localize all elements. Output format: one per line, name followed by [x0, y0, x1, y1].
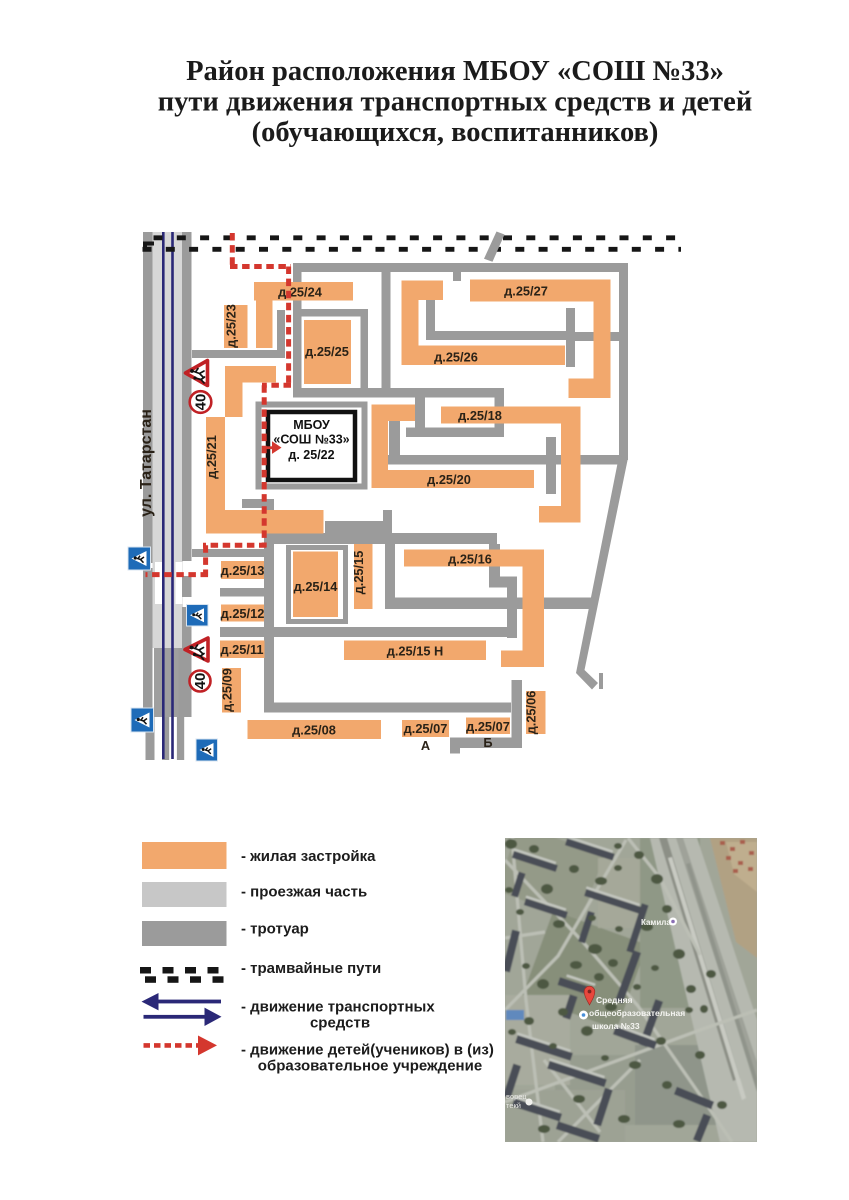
- svg-text:средств: средств: [310, 1015, 370, 1032]
- svg-text:образовательное учреждение: образовательное учреждение: [258, 1058, 482, 1075]
- svg-text:школа №33: школа №33: [592, 1021, 640, 1031]
- svg-text:д.25/23: д.25/23: [224, 304, 239, 348]
- svg-text:- трамвайные пути: - трамвайные пути: [241, 960, 381, 977]
- svg-text:40: 40: [192, 673, 209, 690]
- svg-text:д.25/21: д.25/21: [204, 435, 219, 479]
- svg-text:д.25/27: д.25/27: [504, 284, 548, 299]
- svg-text:Средняя: Средняя: [596, 995, 633, 1005]
- svg-text:д.25/07: д.25/07: [404, 721, 448, 736]
- svg-text:д.25/20: д.25/20: [427, 472, 471, 487]
- svg-text:- движение транспортных: - движение транспортных: [241, 999, 435, 1016]
- svg-text:д.25/26: д.25/26: [434, 350, 478, 365]
- svg-text:д.25/11: д.25/11: [221, 642, 264, 657]
- svg-text:Камила: Камила: [641, 918, 671, 927]
- svg-text:д.25/15 Н: д.25/15 Н: [387, 644, 444, 659]
- svg-text:Б: Б: [483, 735, 492, 750]
- svg-text:- проезжая часть: - проезжая часть: [241, 884, 367, 901]
- svg-text:текй: текй: [506, 1101, 521, 1110]
- svg-text:- жилая застройка: - жилая застройка: [241, 848, 376, 865]
- svg-text:40: 40: [193, 394, 210, 411]
- svg-text:«СОШ №33»: «СОШ №33»: [273, 433, 349, 447]
- svg-text:ворец: ворец: [506, 1092, 527, 1101]
- svg-text:д.25/24: д.25/24: [278, 285, 323, 300]
- svg-text:д.25/16: д.25/16: [448, 552, 492, 567]
- svg-text:д.25/18: д.25/18: [458, 408, 502, 423]
- svg-text:общеобразовательная: общеобразовательная: [589, 1008, 685, 1018]
- svg-text:д.25/06: д.25/06: [524, 691, 539, 735]
- svg-text:д.25/14: д.25/14: [294, 579, 339, 594]
- svg-text:- движение детей(учеников) в (: - движение детей(учеников) в (из): [241, 1042, 494, 1059]
- svg-text:д.25/08: д.25/08: [292, 723, 336, 738]
- svg-text:пути движения транспортных сре: пути движения транспортных средств и дет…: [158, 87, 753, 118]
- svg-text:д.25/15: д.25/15: [351, 551, 366, 595]
- svg-text:д.25/07: д.25/07: [466, 719, 510, 734]
- svg-text:д.25/25: д.25/25: [305, 344, 349, 359]
- svg-text:Район расположения МБОУ «СОШ: Район расположения МБОУ «СОШ №33»: [186, 56, 724, 87]
- svg-text:д.25/12: д.25/12: [221, 606, 265, 621]
- svg-text:(обучающихся, воспитанников): (обучающихся, воспитанников): [252, 117, 659, 148]
- svg-text:- тротуар: - тротуар: [241, 921, 309, 938]
- svg-text:А: А: [421, 738, 430, 753]
- svg-text:ул. Татарстан: ул. Татарстан: [138, 409, 155, 517]
- svg-text:д. 25/22: д. 25/22: [288, 448, 334, 462]
- svg-text:МБОУ: МБОУ: [293, 418, 330, 432]
- svg-text:д.25/09: д.25/09: [220, 668, 235, 712]
- svg-text:д.25/13: д.25/13: [221, 563, 265, 578]
